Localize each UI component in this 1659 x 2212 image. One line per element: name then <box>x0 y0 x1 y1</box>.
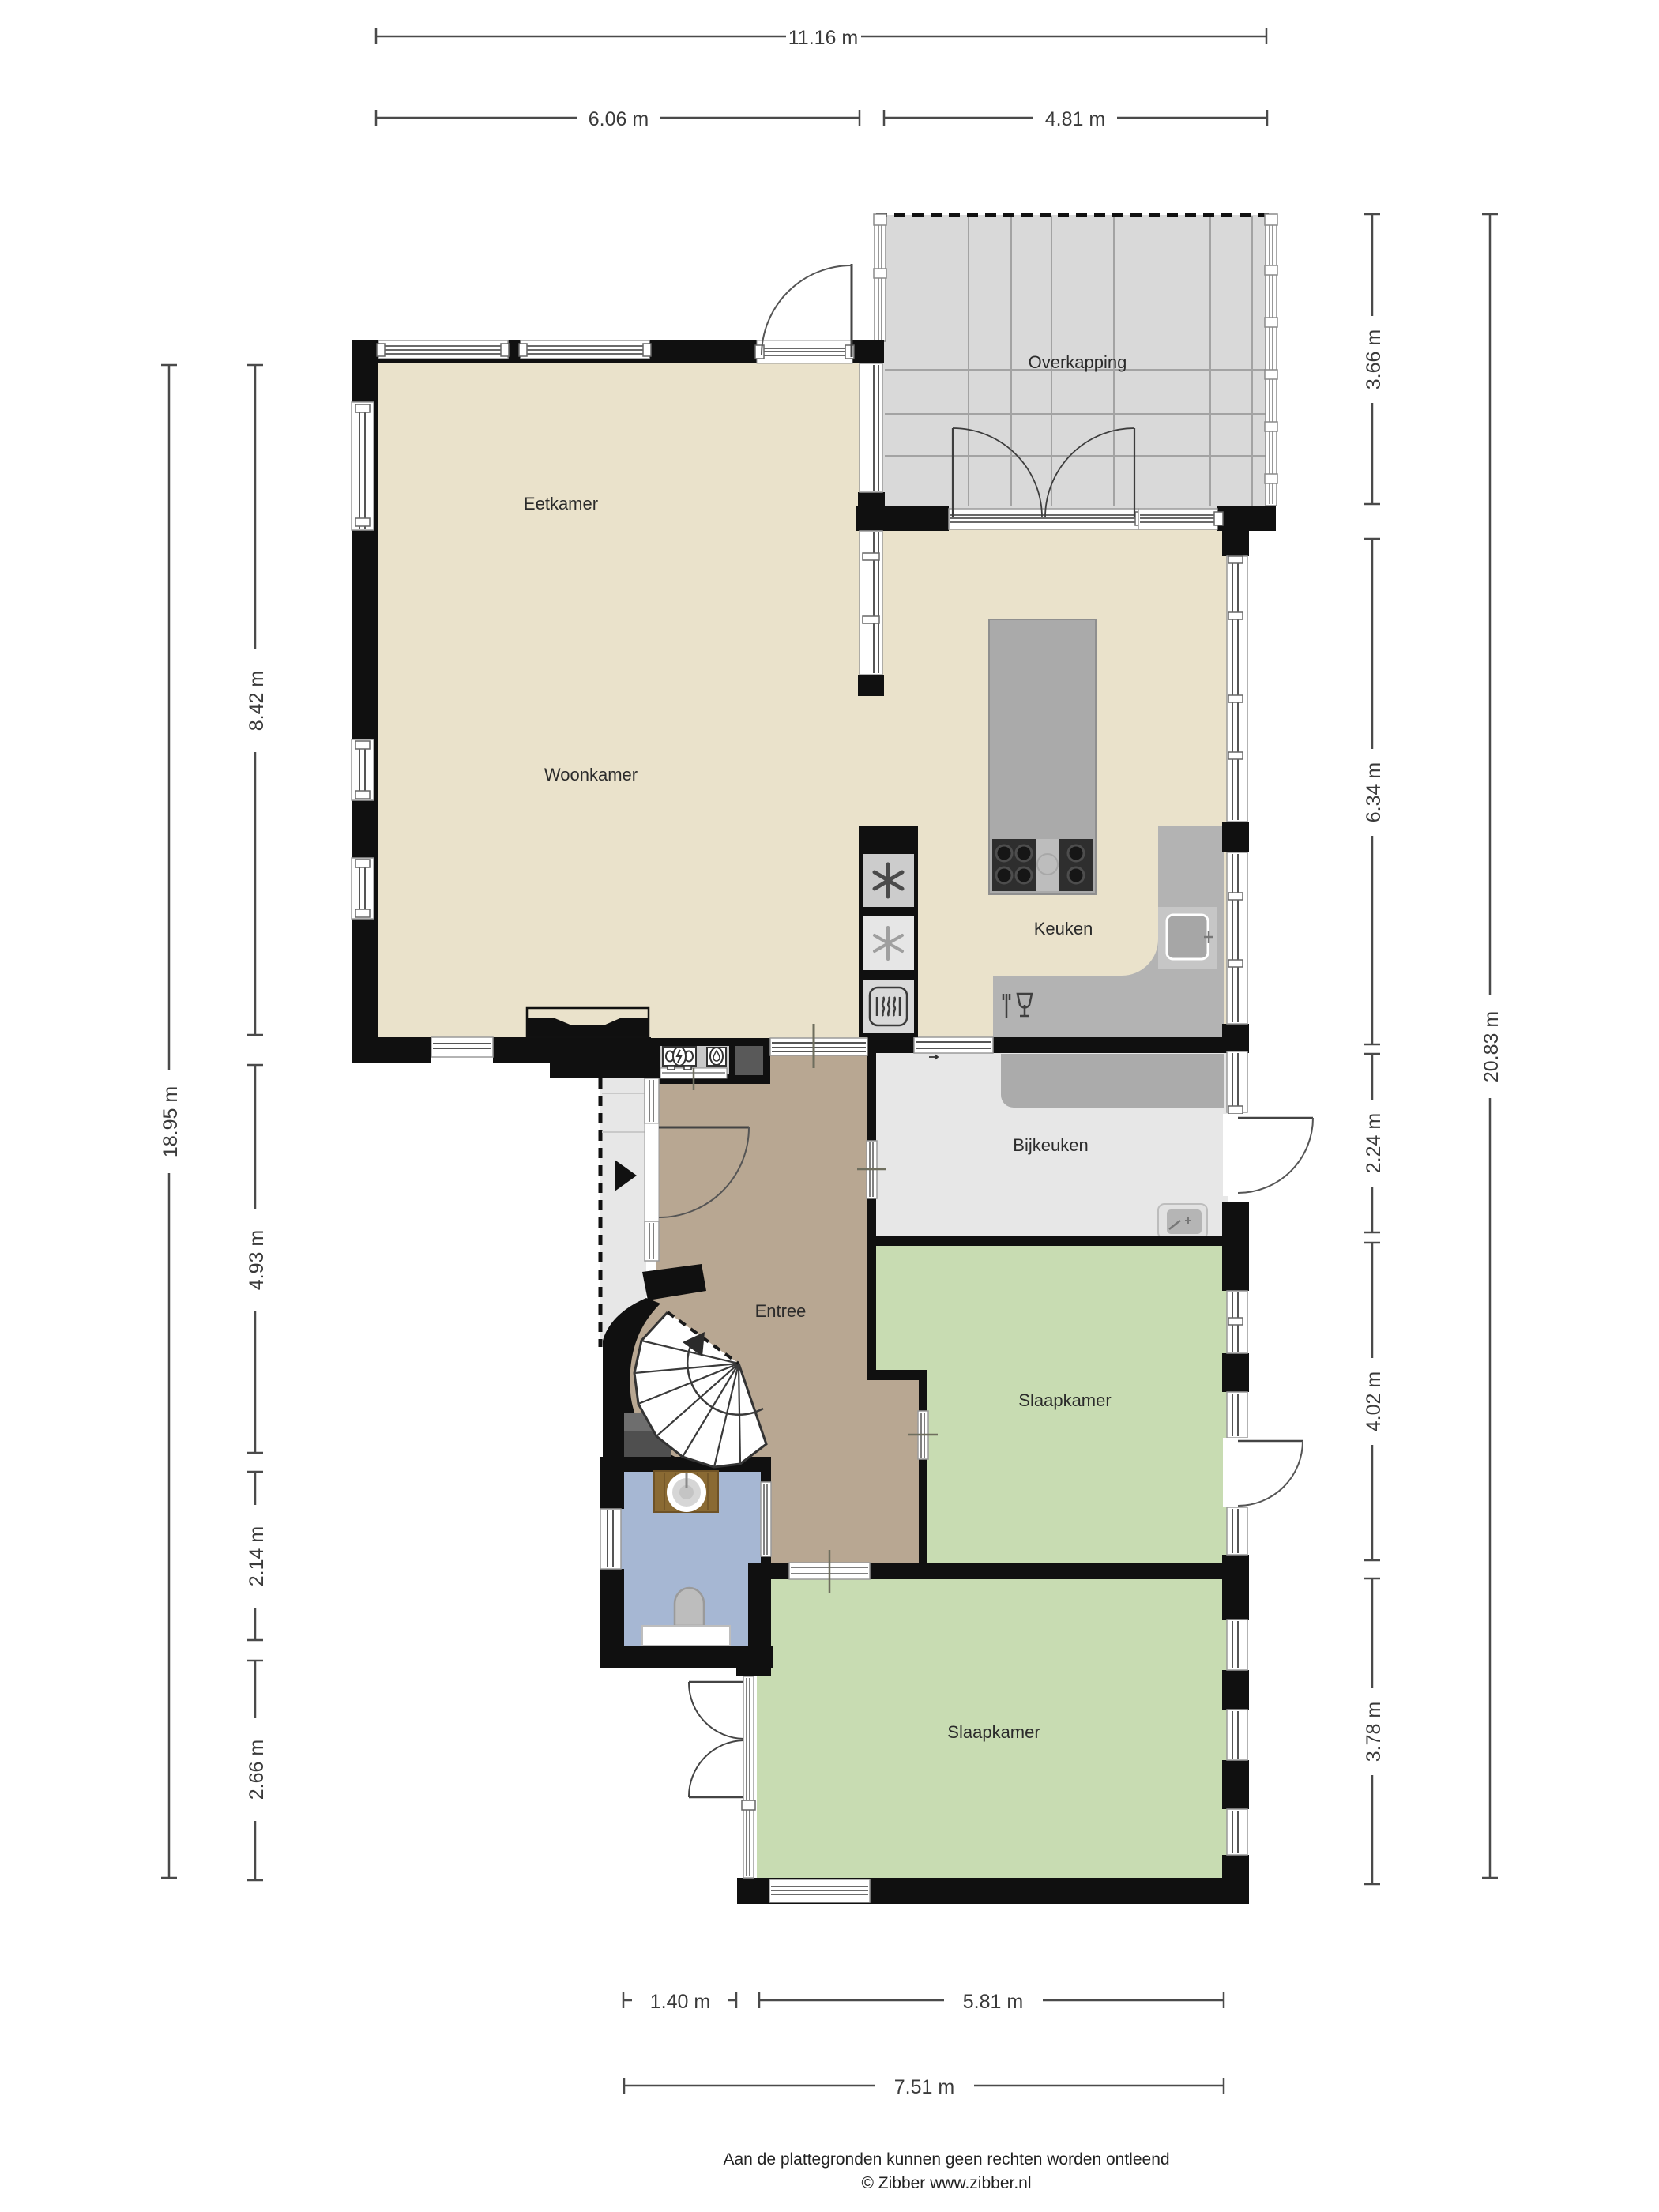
svg-text:Aan de plattegronden kunnen ge: Aan de plattegronden kunnen geen rechten… <box>723 2150 1169 2169</box>
svg-text:Slaapkamer: Slaapkamer <box>947 1722 1040 1742</box>
svg-text:6.06 m: 6.06 m <box>589 108 649 130</box>
svg-text:11.16 m: 11.16 m <box>788 27 858 49</box>
svg-text:5.81 m: 5.81 m <box>963 1991 1023 2013</box>
svg-text:1.40 m: 1.40 m <box>650 1991 710 2013</box>
svg-text:Entree: Entree <box>755 1301 807 1321</box>
svg-text:Slaapkamer: Slaapkamer <box>1018 1390 1111 1410</box>
svg-text:2.24 m: 2.24 m <box>1363 1113 1385 1173</box>
svg-text:Eetkamer: Eetkamer <box>524 494 598 513</box>
svg-text:4.81 m: 4.81 m <box>1045 108 1105 130</box>
svg-text:18.95 m: 18.95 m <box>160 1086 182 1157</box>
svg-text:20.83 m: 20.83 m <box>1480 1011 1503 1082</box>
svg-text:4.02 m: 4.02 m <box>1363 1371 1385 1431</box>
svg-text:6.34 m: 6.34 m <box>1363 762 1385 822</box>
svg-text:8.42 m: 8.42 m <box>246 671 268 731</box>
svg-text:Keuken: Keuken <box>1034 919 1093 939</box>
svg-text:3.78 m: 3.78 m <box>1363 1702 1385 1762</box>
svg-text:Bijkeuken: Bijkeuken <box>1013 1135 1088 1155</box>
svg-text:4.93 m: 4.93 m <box>246 1230 268 1290</box>
svg-text:© Zibber www.zibber.nl: © Zibber www.zibber.nl <box>861 2174 1031 2192</box>
svg-text:7.51 m: 7.51 m <box>894 2076 954 2098</box>
svg-text:2.66 m: 2.66 m <box>246 1740 268 1800</box>
svg-text:Woonkamer: Woonkamer <box>544 765 638 784</box>
svg-text:3.66 m: 3.66 m <box>1363 329 1385 389</box>
svg-text:2.14 m: 2.14 m <box>246 1526 268 1586</box>
svg-text:Overkapping: Overkapping <box>1029 352 1127 372</box>
